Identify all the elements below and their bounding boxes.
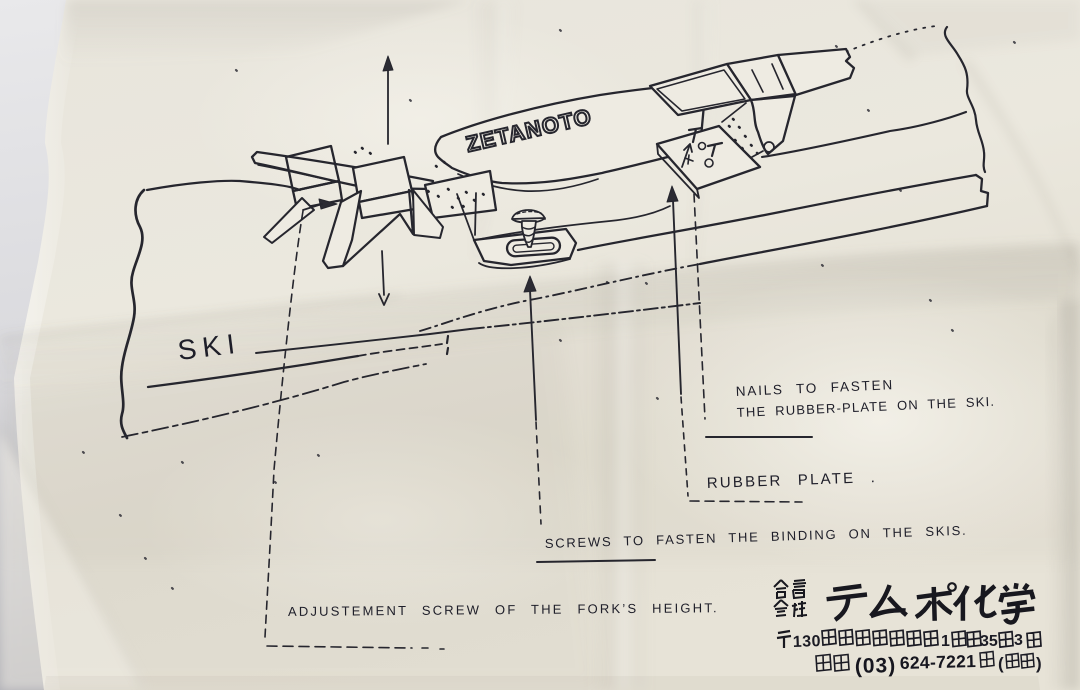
- svg-text:35: 35: [980, 633, 998, 650]
- svg-text:130: 130: [793, 633, 822, 651]
- svg-text:(: (: [998, 654, 1004, 673]
- svg-text:): ): [1036, 654, 1042, 673]
- svg-text:3: 3: [1014, 632, 1023, 649]
- svg-text:(03): (03): [855, 654, 897, 678]
- svg-text:624-7221: 624-7221: [900, 651, 977, 673]
- svg-text:1: 1: [941, 633, 950, 650]
